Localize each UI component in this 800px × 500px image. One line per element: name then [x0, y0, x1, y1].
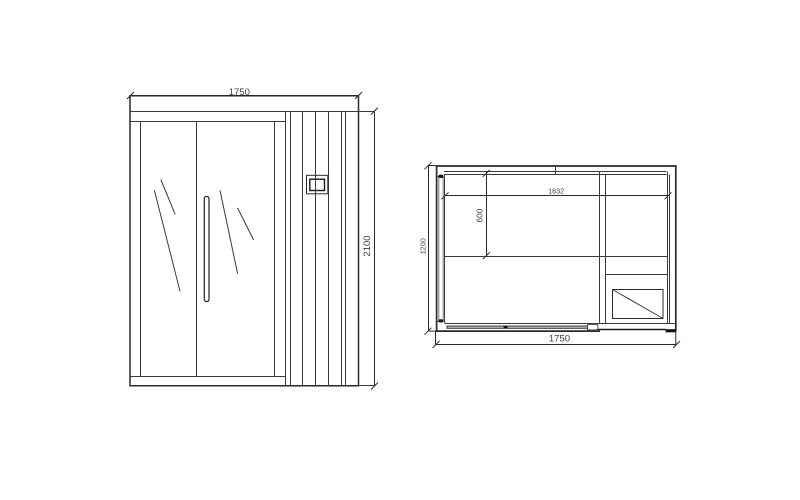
svg-text:2100: 2100 [362, 235, 373, 256]
svg-text:1632: 1632 [548, 187, 564, 196]
svg-text:600: 600 [475, 208, 485, 222]
svg-text:1750: 1750 [549, 334, 570, 345]
svg-text:1200: 1200 [419, 238, 428, 254]
svg-text:1750: 1750 [229, 87, 250, 98]
